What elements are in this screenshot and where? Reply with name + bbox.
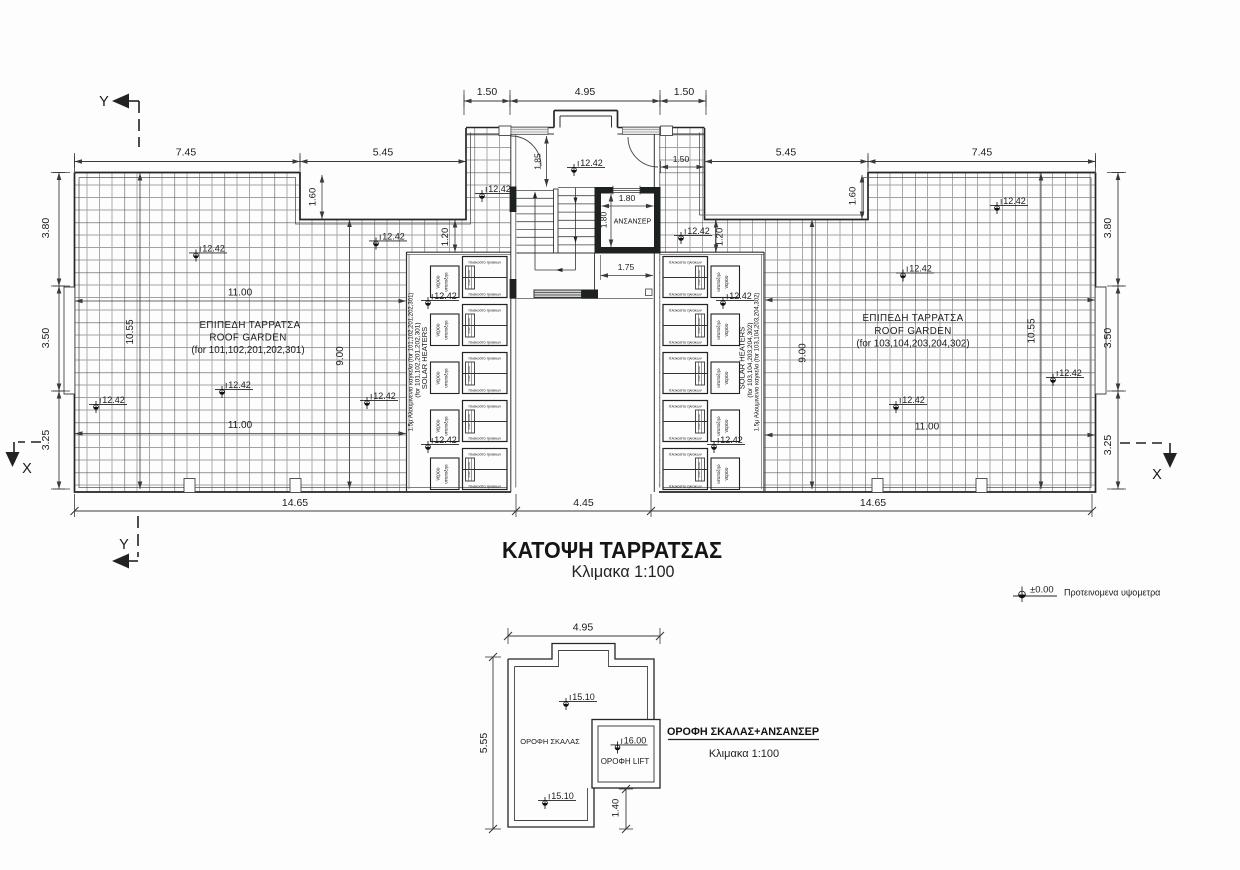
svg-text:12.42: 12.42 [488,184,511,194]
svg-text:1.20: 1.20 [715,228,726,247]
svg-text:πλακοστο ηλιακων: πλακοστο ηλιακων [468,260,501,265]
svg-text:1.80: 1.80 [599,211,609,228]
svg-text:1.75: 1.75 [618,262,635,272]
svg-text:Y: Y [119,537,129,553]
svg-text:10.55: 10.55 [1027,318,1038,343]
svg-text:16.00: 16.00 [624,736,647,746]
svg-text:ΕΠΙΠΕΔΗ ΤΑΡΡΑΤΣΑ: ΕΠΙΠΕΔΗ ΤΑΡΡΑΤΣΑ [862,313,963,324]
svg-text:9.00: 9.00 [335,346,346,366]
svg-text:3.25: 3.25 [1102,435,1114,456]
svg-text:πλακοστο ηλιακων: πλακοστο ηλιακων [669,292,702,297]
svg-text:±0.00: ±0.00 [1030,585,1054,596]
svg-text:(for 103,104,203,204,302): (for 103,104,203,204,302) [856,339,969,350]
svg-text:3.25: 3.25 [40,430,52,451]
svg-text:Προτεινομενα υψομετρα: Προτεινομενα υψομετρα [1064,588,1160,598]
svg-text:X: X [22,461,32,477]
svg-text:4.45: 4.45 [573,497,594,509]
svg-text:12.42: 12.42 [909,264,932,274]
svg-text:1.60: 1.60 [308,188,319,207]
svg-text:12.42: 12.42 [228,380,251,390]
svg-text:7.45: 7.45 [176,147,197,159]
svg-text:11.00: 11.00 [228,288,253,299]
svg-text:solar heater: solar heater [697,414,701,430]
svg-text:solar heater: solar heater [697,462,701,478]
svg-text:ΑΝΣΑΝΣΕΡ: ΑΝΣΑΝΣΕΡ [614,219,652,226]
svg-text:9.00: 9.00 [798,343,809,363]
svg-text:πλακοστο ηλιακων: πλακοστο ηλιακων [468,404,501,409]
svg-text:X: X [1152,467,1162,483]
svg-text:11.00: 11.00 [915,422,940,433]
svg-text:νερου: νερου [436,467,442,480]
svg-text:πλακοστο ηλιακων: πλακοστο ηλιακων [468,484,501,489]
svg-text:πλακοστο ηλιακων: πλακοστο ηλιακων [669,260,702,265]
svg-text:ROOF GARDEN: ROOF GARDEN [874,326,951,337]
svg-text:12.42: 12.42 [1059,368,1082,378]
svg-text:νερου: νερου [436,323,442,336]
svg-text:πλακοστο ηλιακων: πλακοστο ηλιακων [669,436,702,441]
svg-text:νερου: νερου [436,371,442,384]
svg-text:3.50: 3.50 [40,328,52,349]
svg-text:10.55: 10.55 [125,319,136,344]
svg-text:ΟΡΟΦΗ ΣΚΑΛΑΣ+ΑΝΣΑΝΣΕΡ: ΟΡΟΦΗ ΣΚΑΛΑΣ+ΑΝΣΑΝΣΕΡ [667,726,819,738]
svg-text:12.42: 12.42 [720,435,743,445]
svg-text:solar heater: solar heater [467,318,471,334]
svg-text:5.45: 5.45 [776,147,797,159]
svg-text:5.55: 5.55 [478,733,490,754]
svg-text:(for 101,102,201,202,301): (for 101,102,201,202,301) [191,345,304,356]
svg-text:πλακοστο ηλιακων: πλακοστο ηλιακων [669,484,702,489]
svg-text:νερου: νερου [724,467,730,480]
svg-text:solar heater: solar heater [467,366,471,382]
svg-text:1.80: 1.80 [619,193,636,203]
svg-text:SOLAR HEATERS: SOLAR HEATERS [420,327,429,389]
svg-text:12.42: 12.42 [102,395,125,405]
svg-text:ΕΠΙΠΕΔΗ ΤΑΡΡΑΤΣΑ: ΕΠΙΠΕΔΗ ΤΑΡΡΑΤΣΑ [199,320,300,331]
svg-text:1.5μ Αλουμινενιο καγκελο (for: 1.5μ Αλουμινενιο καγκελο (for 103,104,20… [755,293,761,432]
svg-text:SOLAR HEATERS: SOLAR HEATERS [738,327,747,389]
svg-text:πλακοστο ηλιακων: πλακοστο ηλιακων [468,388,501,393]
svg-text:12.42: 12.42 [202,244,225,254]
svg-text:πλακοστο ηλιακων: πλακοστο ηλιακων [468,356,501,361]
svg-text:πλακοστο ηλιακων: πλακοστο ηλιακων [669,340,702,345]
svg-text:πλακοστο ηλιακων: πλακοστο ηλιακων [669,388,702,393]
svg-text:νερου: νερου [436,275,442,288]
svg-text:ΟΡΟΦΗ ΣΚΑΛΑΣ: ΟΡΟΦΗ ΣΚΑΛΑΣ [520,737,580,746]
svg-text:14.65: 14.65 [860,497,886,509]
svg-text:4.95: 4.95 [573,622,594,634]
svg-text:12.42: 12.42 [434,435,457,445]
svg-text:πλακοστο ηλιακων: πλακοστο ηλιακων [669,404,702,409]
svg-text:12.42: 12.42 [382,232,405,242]
svg-text:solar heater: solar heater [697,318,701,334]
svg-text:Y: Y [99,94,109,110]
svg-text:12.42: 12.42 [729,291,752,301]
svg-text:12.42: 12.42 [580,158,603,168]
svg-text:12.42: 12.42 [902,395,925,405]
svg-text:νερου: νερου [724,419,730,432]
svg-text:Κλιμακα 1:100: Κλιμακα 1:100 [709,748,779,760]
svg-text:solar heater: solar heater [467,462,471,478]
svg-text:Κλιμακα 1:100: Κλιμακα 1:100 [572,563,675,581]
svg-text:1.85: 1.85 [533,153,543,170]
svg-text:πλακοστο ηλιακων: πλακοστο ηλιακων [669,452,702,457]
svg-text:solar heater: solar heater [697,366,701,382]
svg-text:15.10: 15.10 [551,791,574,801]
svg-text:ΟΡΟΦΗ LIFT: ΟΡΟΦΗ LIFT [601,757,650,766]
svg-text:12.42: 12.42 [434,291,457,301]
svg-text:12.42: 12.42 [687,226,710,236]
svg-text:solar heater: solar heater [697,270,701,286]
svg-text:solar heater: solar heater [467,270,471,286]
svg-text:πλακοστο ηλιακων: πλακοστο ηλιακων [468,292,501,297]
svg-text:solar heater: solar heater [467,414,471,430]
svg-text:ΚΑΤΟΨΗ ΤΑΡΡΑΤΣΑΣ: ΚΑΤΟΨΗ ΤΑΡΡΑΤΣΑΣ [502,537,722,563]
svg-text:1.50: 1.50 [674,86,695,98]
svg-text:3.80: 3.80 [40,218,52,239]
svg-text:νερου: νερου [724,275,730,288]
svg-text:πλακοστο ηλιακων: πλακοστο ηλιακων [468,308,501,313]
svg-text:πλακοστο ηλιακων: πλακοστο ηλιακων [669,356,702,361]
svg-text:1.50: 1.50 [477,86,498,98]
svg-text:1.60: 1.60 [848,187,859,206]
svg-text:νερου: νερου [724,371,730,384]
svg-text:11.00: 11.00 [228,420,253,431]
svg-text:1.20: 1.20 [440,228,451,247]
svg-text:νερου: νερου [724,323,730,336]
svg-text:7.45: 7.45 [972,147,993,159]
svg-text:πλακοστο ηλιακων: πλακοστο ηλιακων [468,340,501,345]
svg-text:3.80: 3.80 [1102,218,1114,239]
svg-text:1.50: 1.50 [673,154,690,164]
svg-text:12.42: 12.42 [1003,196,1026,206]
svg-text:15.10: 15.10 [572,692,595,702]
svg-text:12.42: 12.42 [373,391,396,401]
svg-text:1.40: 1.40 [611,799,622,818]
svg-text:πλακοστο ηλιακων: πλακοστο ηλιακων [468,436,501,441]
svg-text:4.95: 4.95 [575,86,596,98]
svg-text:3.50: 3.50 [1102,328,1114,349]
svg-text:14.65: 14.65 [282,497,308,509]
svg-text:νερου: νερου [436,419,442,432]
svg-text:(for 103,104,203,204,302): (for 103,104,203,204,302) [747,322,754,397]
svg-text:πλακοστο ηλιακων: πλακοστο ηλιακων [468,452,501,457]
svg-text:πλακοστο ηλιακων: πλακοστο ηλιακων [669,308,702,313]
svg-text:ROOF GARDEN: ROOF GARDEN [209,333,286,344]
svg-text:5.45: 5.45 [373,147,394,159]
